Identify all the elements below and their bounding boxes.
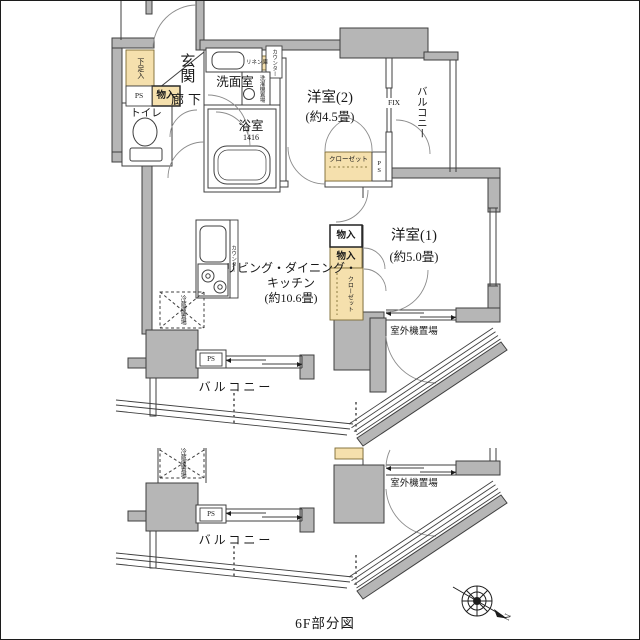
- ps-label-entrance: PS: [126, 86, 152, 106]
- room-label-western2: 洋室(2): [292, 90, 368, 107]
- room-label-western1-size: (約5.0畳): [370, 249, 458, 265]
- ps-label-balcony: PS: [200, 353, 222, 366]
- storage-label-closet2: クローゼット: [325, 154, 372, 166]
- storage-label-mono1: 物入: [330, 225, 362, 247]
- plan-caption: 6F部分図: [278, 615, 372, 632]
- room-label-balcony-right: バルコニー: [412, 80, 430, 144]
- storage-label-counter-wash: カウンター: [266, 47, 282, 78]
- room-label-ldk-size: (約10.6畳): [248, 292, 334, 306]
- storage-label-washer: 洗濯機置場: [254, 75, 268, 102]
- room-label-genkan: 玄関: [176, 46, 196, 90]
- storage-label-linen: リネン庫: [246, 56, 268, 70]
- room-label-ldk-line1: リビング・ダイニング・: [236, 262, 346, 276]
- storage-label-fridge: 冷蔵庫置場: [168, 296, 196, 324]
- room-label-western2-size: (約4.5畳): [288, 109, 372, 125]
- room-label-outdoor-unit-lower: 室外機置場: [382, 478, 446, 491]
- room-label-bathroom: 浴室: [222, 118, 280, 133]
- room-label-corridor: 廊下: [160, 92, 216, 108]
- room-label-balcony-bottom: バルコニー: [188, 380, 284, 396]
- bathtub-icon: [214, 146, 270, 184]
- kitchen-icon: [196, 220, 230, 298]
- storage-label-closet1: クローゼット: [336, 270, 362, 318]
- fix-window-label: FIX: [382, 98, 406, 108]
- room-label-outdoor-unit: 室外機置場: [382, 326, 446, 339]
- floorplan-canvas: 玄関 下足入 PS 物入 廊下 トイレ 洗面室 リネン庫 洗濯機置場 カウンター…: [0, 0, 640, 640]
- storage-label-shoe-box: 下足入: [126, 51, 154, 85]
- room-label-ldk-line2: キッチン: [252, 277, 330, 291]
- compass-rose-icon: [453, 586, 507, 619]
- room-label-western1: 洋室(1): [372, 228, 456, 245]
- ps-label-closet2: PS: [372, 152, 386, 181]
- storage-label-fridge-lower: 冷蔵庫置場: [168, 450, 196, 476]
- ps-label-balcony-lower: PS: [200, 508, 222, 521]
- room-label-balcony-lower: バルコニー: [188, 533, 284, 549]
- storage-label-counter-kitchen: カウンター: [228, 230, 238, 288]
- room-label-bathroom-size: 1416: [228, 133, 274, 143]
- room-label-toilet: トイレ: [118, 107, 174, 121]
